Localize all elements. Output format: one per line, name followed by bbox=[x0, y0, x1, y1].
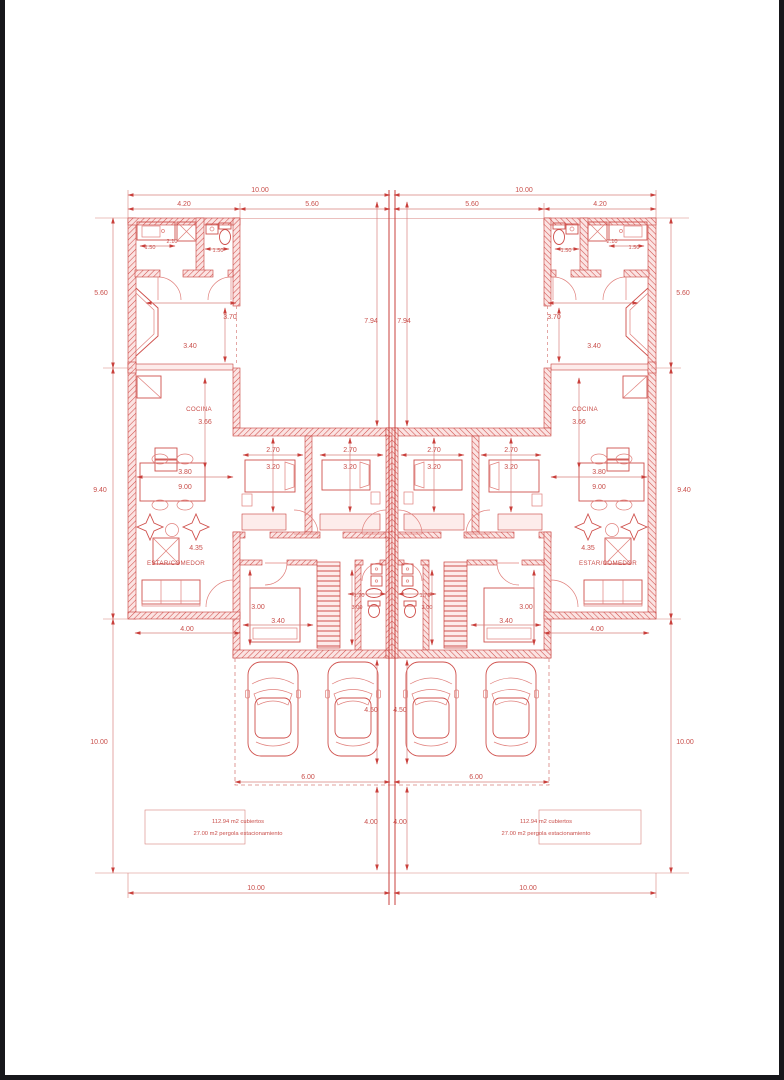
dim-top-total-left: 10.00 bbox=[251, 187, 269, 194]
dim-bed3-depth-right: 3.00 bbox=[519, 604, 533, 611]
dim-bath-width-right: 2.10 bbox=[607, 239, 618, 245]
dim-side-mid-left: 9.40 bbox=[93, 487, 107, 494]
room-label-living-left: ESTAR/COMEDOR bbox=[147, 560, 205, 567]
scanned-plan-page: 10.00 10.00 4.20 5.60 5.60 4.20 5.60 5.6… bbox=[0, 0, 784, 1080]
dim-dining-depth-right: 9.00 bbox=[592, 484, 606, 491]
dim-bed3-width-left: 3.40 bbox=[271, 618, 285, 625]
dim-bed-depth-2: 3.20 bbox=[343, 464, 357, 471]
dim-bed-depth-3: 3.20 bbox=[427, 464, 441, 471]
dim-bath-sink-right: 1.50 bbox=[629, 245, 640, 251]
dim-bottom-total-left: 10.00 bbox=[247, 885, 265, 892]
dim-dining-width-right: 3.80 bbox=[592, 469, 606, 476]
dim-park-width-left: 6.00 bbox=[301, 774, 315, 781]
dim-bath-wc-left: 1.50 bbox=[213, 248, 224, 254]
area-box-right bbox=[539, 810, 641, 844]
unit-right bbox=[386, 190, 689, 898]
dim-kitchen-right: 3.66 bbox=[572, 419, 586, 426]
dim-bed-width-4: 2.70 bbox=[504, 447, 518, 454]
dim-hall-width-left: 3.40 bbox=[183, 343, 197, 350]
dim-side-mid-right: 9.40 bbox=[677, 487, 691, 494]
dim-side-bottom-right: 10.00 bbox=[676, 739, 694, 746]
dim-bath2-width-left: 1.70 bbox=[354, 593, 365, 599]
dim-top-total-right: 10.00 bbox=[515, 187, 533, 194]
dim-side-top-left: 5.60 bbox=[94, 290, 108, 297]
dim-bath-width-left: 2.10 bbox=[167, 239, 178, 245]
unit-left bbox=[95, 190, 398, 898]
dim-court-depth-right: 7.94 bbox=[397, 318, 411, 325]
floor-plan-canvas: 10.00 10.00 4.20 5.60 5.60 4.20 5.60 5.6… bbox=[0, 0, 784, 1080]
area-covered-right: 112.94 m2 cubiertos bbox=[520, 819, 572, 825]
dim-bath-sink-left: 1.50 bbox=[145, 245, 156, 251]
dim-bed3-width-right: 3.40 bbox=[499, 618, 513, 625]
dim-wing-width-left: 4.20 bbox=[177, 201, 191, 208]
dim-living-width-left: 4.00 bbox=[180, 626, 194, 633]
room-label-kitchen-left: COCINA bbox=[186, 406, 212, 413]
dim-park-depth-right: 4.00 bbox=[393, 819, 407, 826]
dim-hall-width-right: 3.40 bbox=[587, 343, 601, 350]
area-covered-left: 112.94 m2 cubiertos bbox=[212, 819, 264, 825]
dim-bed-width-1: 2.70 bbox=[266, 447, 280, 454]
dim-court-width-right: 5.60 bbox=[465, 201, 479, 208]
room-label-living-right: ESTAR/COMEDOR bbox=[579, 560, 637, 567]
dim-side-top-right: 5.60 bbox=[676, 290, 690, 297]
dim-bed-width-3: 2.70 bbox=[427, 447, 441, 454]
dim-kitchen-left: 3.66 bbox=[198, 419, 212, 426]
dim-bottom-total-right: 10.00 bbox=[519, 885, 537, 892]
dim-bath2-width-right: 1.70 bbox=[420, 593, 431, 599]
dim-side-bottom-left: 10.00 bbox=[90, 739, 108, 746]
dim-park-depth-left: 4.00 bbox=[364, 819, 378, 826]
dim-bath-wc-right: 1.50 bbox=[561, 248, 572, 254]
area-pergola-left: 27.00 m2 pergola estacionamiento bbox=[194, 831, 283, 837]
dim-court-width-left: 5.60 bbox=[305, 201, 319, 208]
area-box-left bbox=[145, 810, 245, 844]
dim-living-depth-left: 4.35 bbox=[189, 545, 203, 552]
dim-dining-depth-left: 9.00 bbox=[178, 484, 192, 491]
dim-living-width-right: 4.00 bbox=[590, 626, 604, 633]
dim-hall-depth-left: 3.70 bbox=[223, 314, 237, 321]
dim-bath2-depth-left: 3.00 bbox=[352, 605, 363, 611]
dim-bed-width-2: 2.70 bbox=[343, 447, 357, 454]
dim-wing-width-right: 4.20 bbox=[593, 201, 607, 208]
dim-bed-depth-4: 3.20 bbox=[504, 464, 518, 471]
dim-car-depth-right: 4.50 bbox=[393, 707, 407, 714]
dim-bath2-depth-right: 3.00 bbox=[422, 605, 433, 611]
dim-hall-depth-right: 3.70 bbox=[547, 314, 561, 321]
dim-dining-width-left: 3.80 bbox=[178, 469, 192, 476]
dim-living-depth-right: 4.35 bbox=[581, 545, 595, 552]
dim-park-width-right: 6.00 bbox=[469, 774, 483, 781]
dim-court-depth-left: 7.94 bbox=[364, 318, 378, 325]
dim-bed-depth-1: 3.20 bbox=[266, 464, 280, 471]
dim-car-depth-left: 4.50 bbox=[364, 707, 378, 714]
room-label-kitchen-right: COCINA bbox=[572, 406, 598, 413]
area-pergola-right: 27.00 m2 pergola estacionamiento bbox=[502, 831, 591, 837]
dim-bed3-depth-left: 3.00 bbox=[251, 604, 265, 611]
